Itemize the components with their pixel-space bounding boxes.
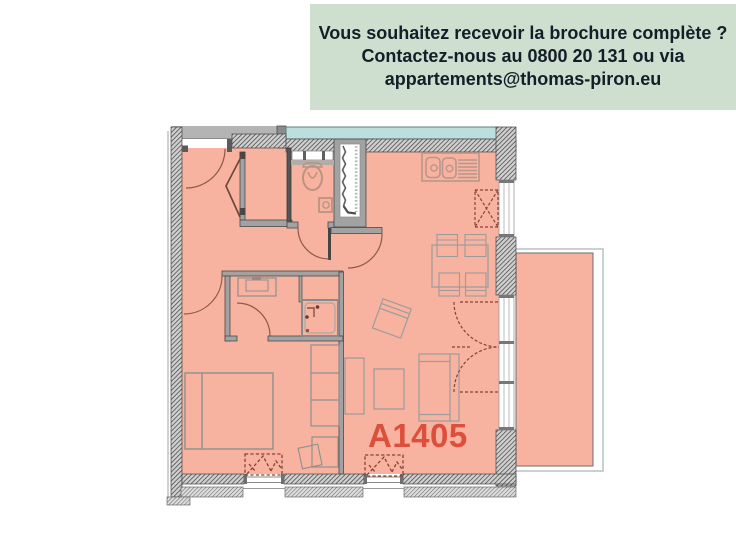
svg-text:A1405: A1405 [368,417,468,454]
